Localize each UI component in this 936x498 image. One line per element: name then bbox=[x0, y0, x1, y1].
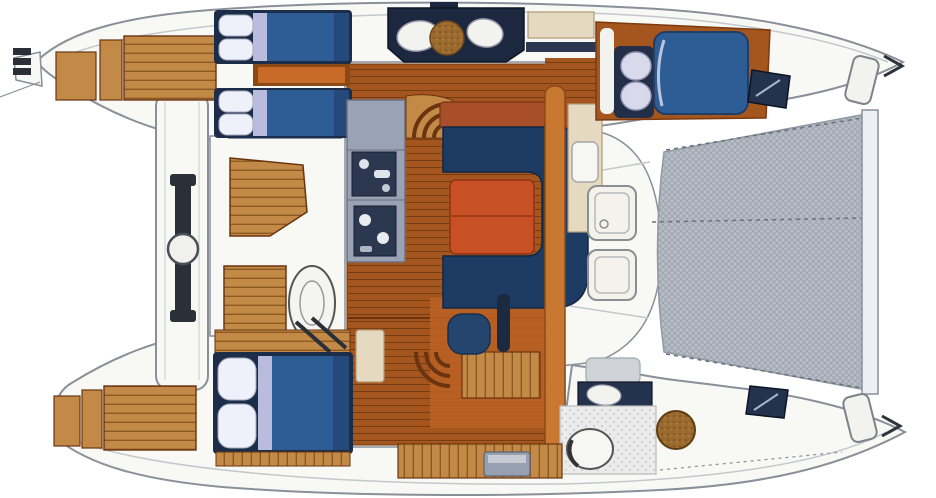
berth-mattress bbox=[271, 356, 335, 450]
berth-sheet bbox=[253, 13, 267, 61]
berth-foot bbox=[334, 13, 349, 61]
berth-sheet bbox=[258, 356, 272, 450]
starboard-stern-steps bbox=[54, 386, 196, 450]
bow-trampoline bbox=[652, 114, 866, 390]
cockpit-bench bbox=[224, 266, 286, 332]
berth-mattress bbox=[654, 32, 748, 114]
berth-pillow bbox=[219, 15, 253, 36]
forward-crossbeam bbox=[862, 110, 878, 394]
traveler-winch-icon bbox=[168, 234, 198, 264]
foredeck-hatch-2 bbox=[588, 250, 636, 300]
round-wood-deck-hatch bbox=[657, 411, 695, 449]
berth-pillow bbox=[219, 91, 253, 112]
starboard-mid-bench bbox=[398, 444, 562, 478]
cabin-shelf-inlay bbox=[258, 67, 345, 83]
starboard-hull-window bbox=[746, 386, 788, 418]
berth-pillow bbox=[218, 404, 256, 448]
berth-pillow bbox=[219, 114, 253, 135]
floor-plan-canvas bbox=[0, 0, 936, 498]
salon-table bbox=[450, 180, 534, 254]
berth-foot bbox=[333, 356, 349, 450]
berth-base-step bbox=[216, 452, 350, 466]
foredeck-hatch-1 bbox=[588, 186, 636, 240]
console-side-cabinet bbox=[528, 12, 594, 38]
port-swim-ladder-icon bbox=[13, 48, 31, 75]
berth-mattress bbox=[266, 90, 336, 136]
galley bbox=[347, 100, 405, 262]
shower-tray bbox=[586, 358, 640, 384]
bench-gray-box-lid bbox=[488, 455, 526, 463]
galley-sink-unit bbox=[352, 152, 396, 196]
berth-sheet bbox=[253, 90, 267, 136]
port-hull-window bbox=[748, 70, 790, 108]
starboard-aft-cabin bbox=[213, 318, 353, 466]
salon-stool bbox=[448, 314, 490, 354]
berth-pillow bbox=[218, 358, 256, 400]
port-mooring-line bbox=[0, 82, 40, 97]
berth-pillow bbox=[219, 39, 253, 60]
berth-pillow bbox=[621, 82, 651, 110]
aft-platform bbox=[156, 92, 208, 390]
door-pull-bar bbox=[497, 294, 510, 352]
step-treads bbox=[462, 352, 540, 398]
berth-mattress bbox=[266, 13, 336, 61]
helm-seat bbox=[289, 266, 335, 340]
beige-locker bbox=[356, 330, 384, 382]
cabin-sole-sliver bbox=[600, 28, 614, 114]
port-forward-cabin bbox=[596, 22, 770, 120]
catamaran-floor-plan bbox=[0, 0, 936, 498]
forward-bulkhead bbox=[545, 86, 565, 452]
berth-pillow bbox=[621, 52, 651, 80]
console-round-board bbox=[430, 21, 464, 55]
nav-sink bbox=[572, 142, 598, 182]
galley-stove bbox=[354, 206, 396, 256]
port-bow-locker bbox=[844, 55, 902, 106]
